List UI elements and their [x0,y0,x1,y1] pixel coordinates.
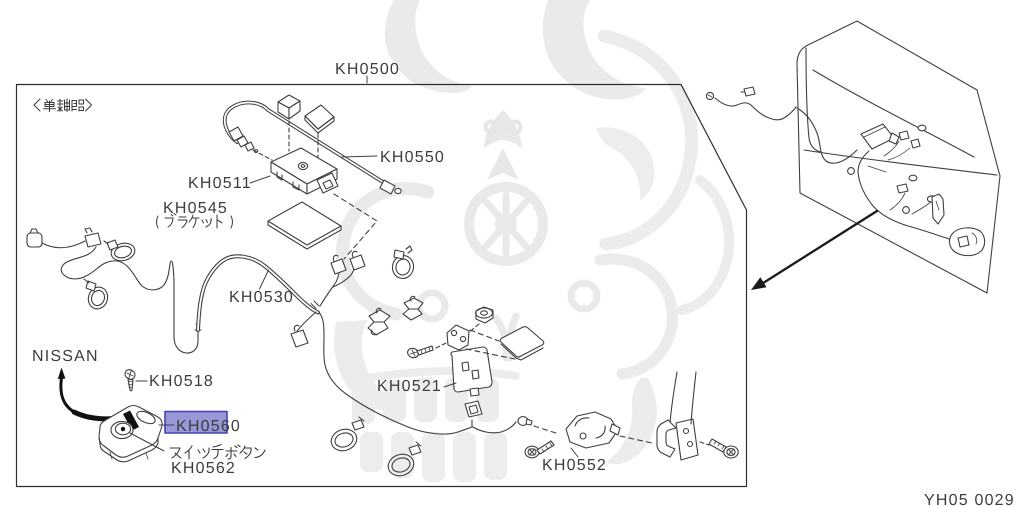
svg-text:KH0545: KH0545 [163,200,228,217]
svg-text:KH0562: KH0562 [171,460,236,477]
svg-text:KH0500: KH0500 [335,61,400,78]
svg-text:NISSAN: NISSAN [32,348,99,365]
svg-text:YH05 0029: YH05 0029 [924,492,1015,506]
svg-text:KH0521: KH0521 [377,378,442,395]
svg-text:KH0518: KH0518 [149,373,214,390]
svg-text:KH0530: KH0530 [229,289,294,306]
svg-text:KH0552: KH0552 [542,457,607,474]
svg-text:KH0511: KH0511 [188,175,252,192]
svg-text:KH0550: KH0550 [380,149,445,166]
svg-text:KH0560: KH0560 [176,418,241,435]
